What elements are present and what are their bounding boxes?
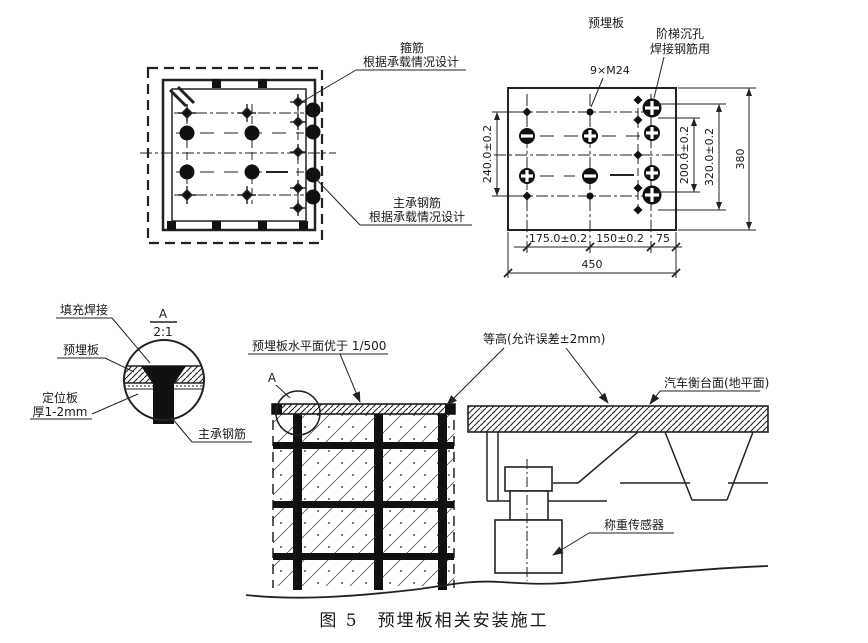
stirrup-leader <box>300 70 356 103</box>
dim-320: 320.0±0.2 <box>703 128 716 186</box>
dim-175: 175.0±0.2 <box>529 232 587 245</box>
embedded-plate-label: 预埋板 <box>57 343 134 372</box>
equal-height-text: 等高(允许误差±2mm) <box>483 331 605 346</box>
stirrup-sections <box>167 79 308 230</box>
counterbore-hole <box>643 99 662 118</box>
load-cell <box>495 459 562 581</box>
locator-plate-text1: 定位板 <box>42 390 78 405</box>
main-rebar-detail-text: 主承钢筋 <box>198 426 246 441</box>
hole-cross <box>519 168 535 184</box>
bolt-hole-markers <box>178 94 306 216</box>
figure-caption: 图 5 预埋板相关安装施工 <box>319 611 548 631</box>
dim-380: 380 <box>734 149 747 170</box>
dim-150: 150±0.2 <box>596 232 644 245</box>
hole-cross <box>582 128 598 144</box>
load-cell-label: 称重传感器 <box>553 517 674 555</box>
technical-drawing: 箍筋 根据承载情况设计 主承钢筋 根据承载情况设计 预埋板 <box>0 0 868 643</box>
plan-view: 箍筋 根据承载情况设计 主承钢筋 根据承载情况设计 <box>140 40 472 243</box>
section-view: A 预埋板水平面优于 1/500 <box>246 331 769 598</box>
detail-scale: 2:1 <box>153 325 172 339</box>
vertical-dimensions <box>492 88 756 230</box>
locator-plate-label: 定位板 厚1-2mm <box>30 390 138 419</box>
counterbore-label-line2: 焊接钢筋用 <box>650 41 710 56</box>
dim-75: 75 <box>656 232 670 245</box>
figure-canvas: 箍筋 根据承载情况设计 主承钢筋 根据承载情况设计 预埋板 <box>0 0 868 643</box>
bolt-spec-text: 9×M24 <box>590 64 630 77</box>
dim-200: 200.0±0.2 <box>678 126 691 184</box>
counterbore-hole <box>644 125 660 141</box>
plate-title: 预埋板 <box>588 16 624 30</box>
platform-label: 汽车衡台面(地平面) <box>650 375 769 404</box>
detail-view: A 2:1 填充焊接 预埋板 定位板 厚1-2mm <box>30 302 252 442</box>
counterbore-label-line1: 阶梯沉孔 <box>656 27 704 41</box>
corner-hatch <box>170 87 194 106</box>
embedded-plate-strip <box>272 404 455 414</box>
embedded-plate-text: 预埋板 <box>63 343 99 357</box>
counterbore-hole <box>644 165 660 181</box>
stirrup-label: 箍筋 根据承载情况设计 <box>300 40 466 103</box>
main-rebar-label-line1: 主承钢筋 <box>393 195 441 210</box>
stirrup-label-line1: 箍筋 <box>400 40 424 55</box>
fill-weld-text: 填充焊接 <box>60 302 108 317</box>
hole-slot <box>582 168 598 184</box>
equal-height-label: 等高(允许误差±2mm) <box>447 331 608 405</box>
stirrup-label-line2: 根据承载情况设计 <box>363 55 459 69</box>
main-rebar-detail-label: 主承钢筋 <box>171 417 252 442</box>
main-rebar-label-line2: 根据承载情况设计 <box>369 210 465 224</box>
levelness-text: 预埋板水平面优于 1/500 <box>252 339 386 353</box>
rebar-stem <box>153 366 174 424</box>
hole-slot <box>519 128 535 144</box>
counterbore-hole <box>643 186 662 205</box>
plate-view: 预埋板 <box>481 16 756 278</box>
dim-240: 240.0±0.2 <box>481 125 494 183</box>
platform-text: 汽车衡台面(地平面) <box>664 375 769 390</box>
load-cell-text: 称重传感器 <box>604 517 664 532</box>
plate-inner-border <box>172 89 306 221</box>
detail-ref-letter: A <box>159 307 168 321</box>
section-detail-ref: A <box>268 371 277 385</box>
locator-plate-text2: 厚1-2mm <box>33 405 88 419</box>
weighbridge-deck <box>468 406 768 432</box>
main-rebar-label: 主承钢筋 根据承载情况设计 <box>316 179 472 225</box>
dim-450: 450 <box>582 258 603 271</box>
bolt-spec-label: 9×M24 <box>590 64 630 107</box>
